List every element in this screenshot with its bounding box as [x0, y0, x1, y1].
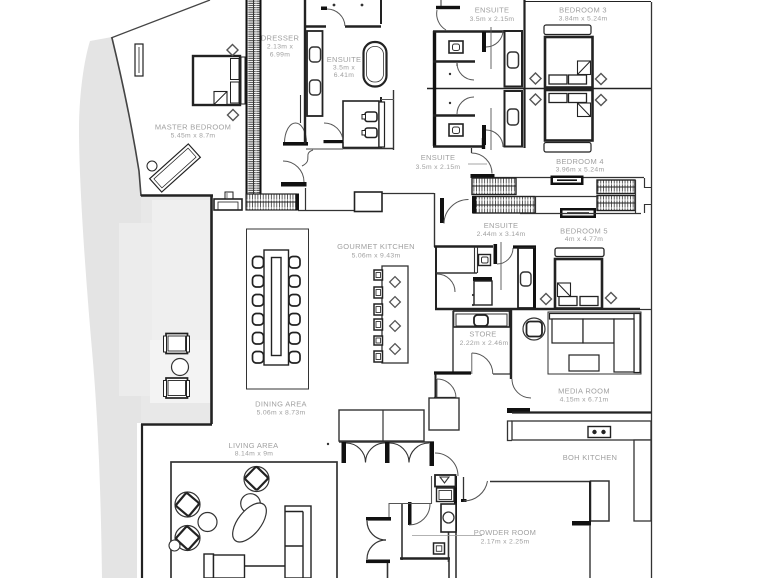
svg-text:ENSUITE: ENSUITE: [327, 55, 362, 64]
svg-text:ENSUITE: ENSUITE: [475, 5, 510, 14]
svg-text:GOURMET KITCHEN: GOURMET KITCHEN: [337, 242, 415, 251]
svg-text:5.06m x 8.73m: 5.06m x 8.73m: [257, 410, 306, 417]
svg-text:5.45m x 8.7m: 5.45m x 8.7m: [171, 133, 216, 140]
svg-text:2.17m x 2.25m: 2.17m x 2.25m: [481, 539, 530, 546]
svg-text:2.13m x: 2.13m x: [267, 44, 294, 51]
svg-text:MEDIA ROOM: MEDIA ROOM: [558, 387, 610, 396]
svg-text:3.5m x 2.15m: 3.5m x 2.15m: [470, 16, 515, 23]
svg-text:ENSUITE: ENSUITE: [484, 221, 519, 230]
svg-text:2.22m x 2.46m: 2.22m x 2.46m: [460, 340, 509, 347]
svg-text:BEDROOM 3: BEDROOM 3: [559, 5, 607, 14]
svg-text:BOH KITCHEN: BOH KITCHEN: [563, 453, 618, 462]
svg-text:4m x 4.77m: 4m x 4.77m: [565, 236, 604, 243]
svg-text:6.99m: 6.99m: [270, 52, 290, 59]
svg-text:STORE: STORE: [469, 330, 496, 339]
svg-text:LIVING AREA: LIVING AREA: [229, 441, 279, 450]
svg-text:BEDROOM 4: BEDROOM 4: [556, 157, 604, 166]
svg-text:5.06m x 9.43m: 5.06m x 9.43m: [352, 253, 401, 260]
svg-text:6.41m: 6.41m: [334, 72, 354, 79]
svg-text:4.15m x 6.71m: 4.15m x 6.71m: [560, 397, 609, 404]
svg-text:3.84m x 5.24m: 3.84m x 5.24m: [559, 16, 608, 23]
svg-text:3.5m x 2.15m: 3.5m x 2.15m: [416, 164, 461, 171]
svg-text:3.5m x: 3.5m x: [333, 65, 355, 72]
svg-text:BEDROOM 5: BEDROOM 5: [560, 227, 608, 236]
svg-text:POWDER ROOM: POWDER ROOM: [474, 528, 536, 537]
svg-text:DINING AREA: DINING AREA: [255, 400, 307, 409]
svg-text:DRESSER: DRESSER: [261, 34, 300, 43]
svg-text:ENSUITE: ENSUITE: [421, 153, 456, 162]
svg-text:3.96m x 5.24m: 3.96m x 5.24m: [556, 167, 605, 174]
svg-text:MASTER BEDROOM: MASTER BEDROOM: [155, 123, 231, 132]
svg-text:2.44m x 3.14m: 2.44m x 3.14m: [477, 231, 526, 238]
svg-text:8.14m x 9m: 8.14m x 9m: [235, 451, 274, 458]
